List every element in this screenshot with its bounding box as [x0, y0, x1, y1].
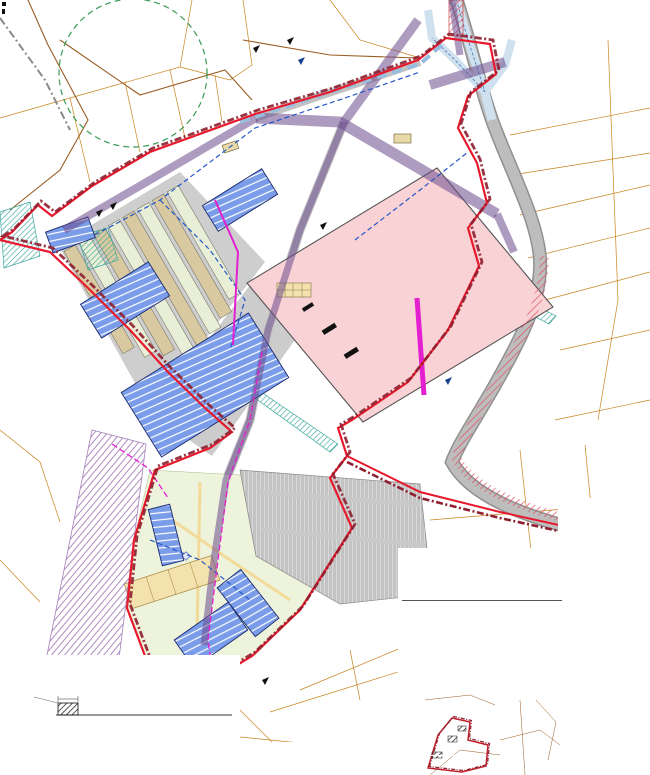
corner-mark	[2, 2, 6, 6]
util-legend-block	[563, 733, 648, 735]
section-table-block	[2, 721, 102, 723]
corner-mark2	[2, 9, 5, 14]
detail-plan-sheet	[0, 0, 650, 775]
mini-legend-block	[495, 688, 563, 690]
rights-table-block	[402, 600, 562, 601]
rights-title	[402, 600, 562, 601]
inset-panel-bg	[418, 686, 650, 775]
plan-map-canvas	[0, 0, 650, 775]
plots-table-block	[163, 755, 468, 756]
legend-panel	[563, 503, 648, 505]
tables-panel-bg	[398, 548, 562, 688]
